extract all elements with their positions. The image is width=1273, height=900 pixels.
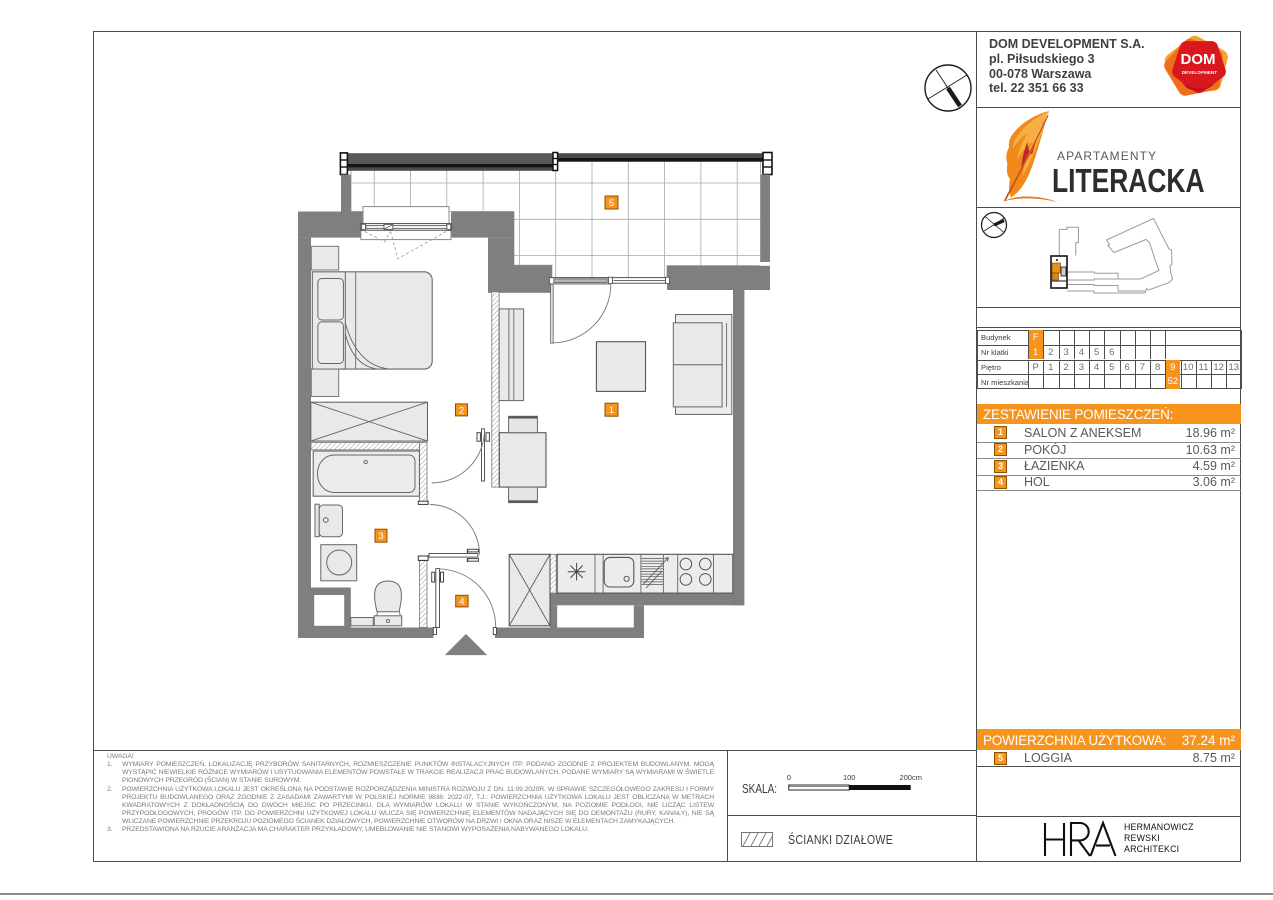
svg-text:100: 100	[843, 773, 856, 782]
svg-text:0: 0	[787, 773, 791, 782]
svg-text:200cm: 200cm	[899, 773, 922, 782]
svg-text:HERMANOWICZ: HERMANOWICZ	[1124, 822, 1194, 832]
svg-text:1: 1	[609, 405, 614, 416]
svg-text:4: 4	[459, 597, 464, 608]
svg-text:5: 5	[609, 198, 614, 209]
svg-text:ARCHITEKCI: ARCHITEKCI	[1124, 844, 1179, 854]
svg-text:REWSKI: REWSKI	[1124, 833, 1160, 843]
svg-text:3: 3	[378, 531, 383, 542]
svg-text:2: 2	[459, 405, 464, 416]
